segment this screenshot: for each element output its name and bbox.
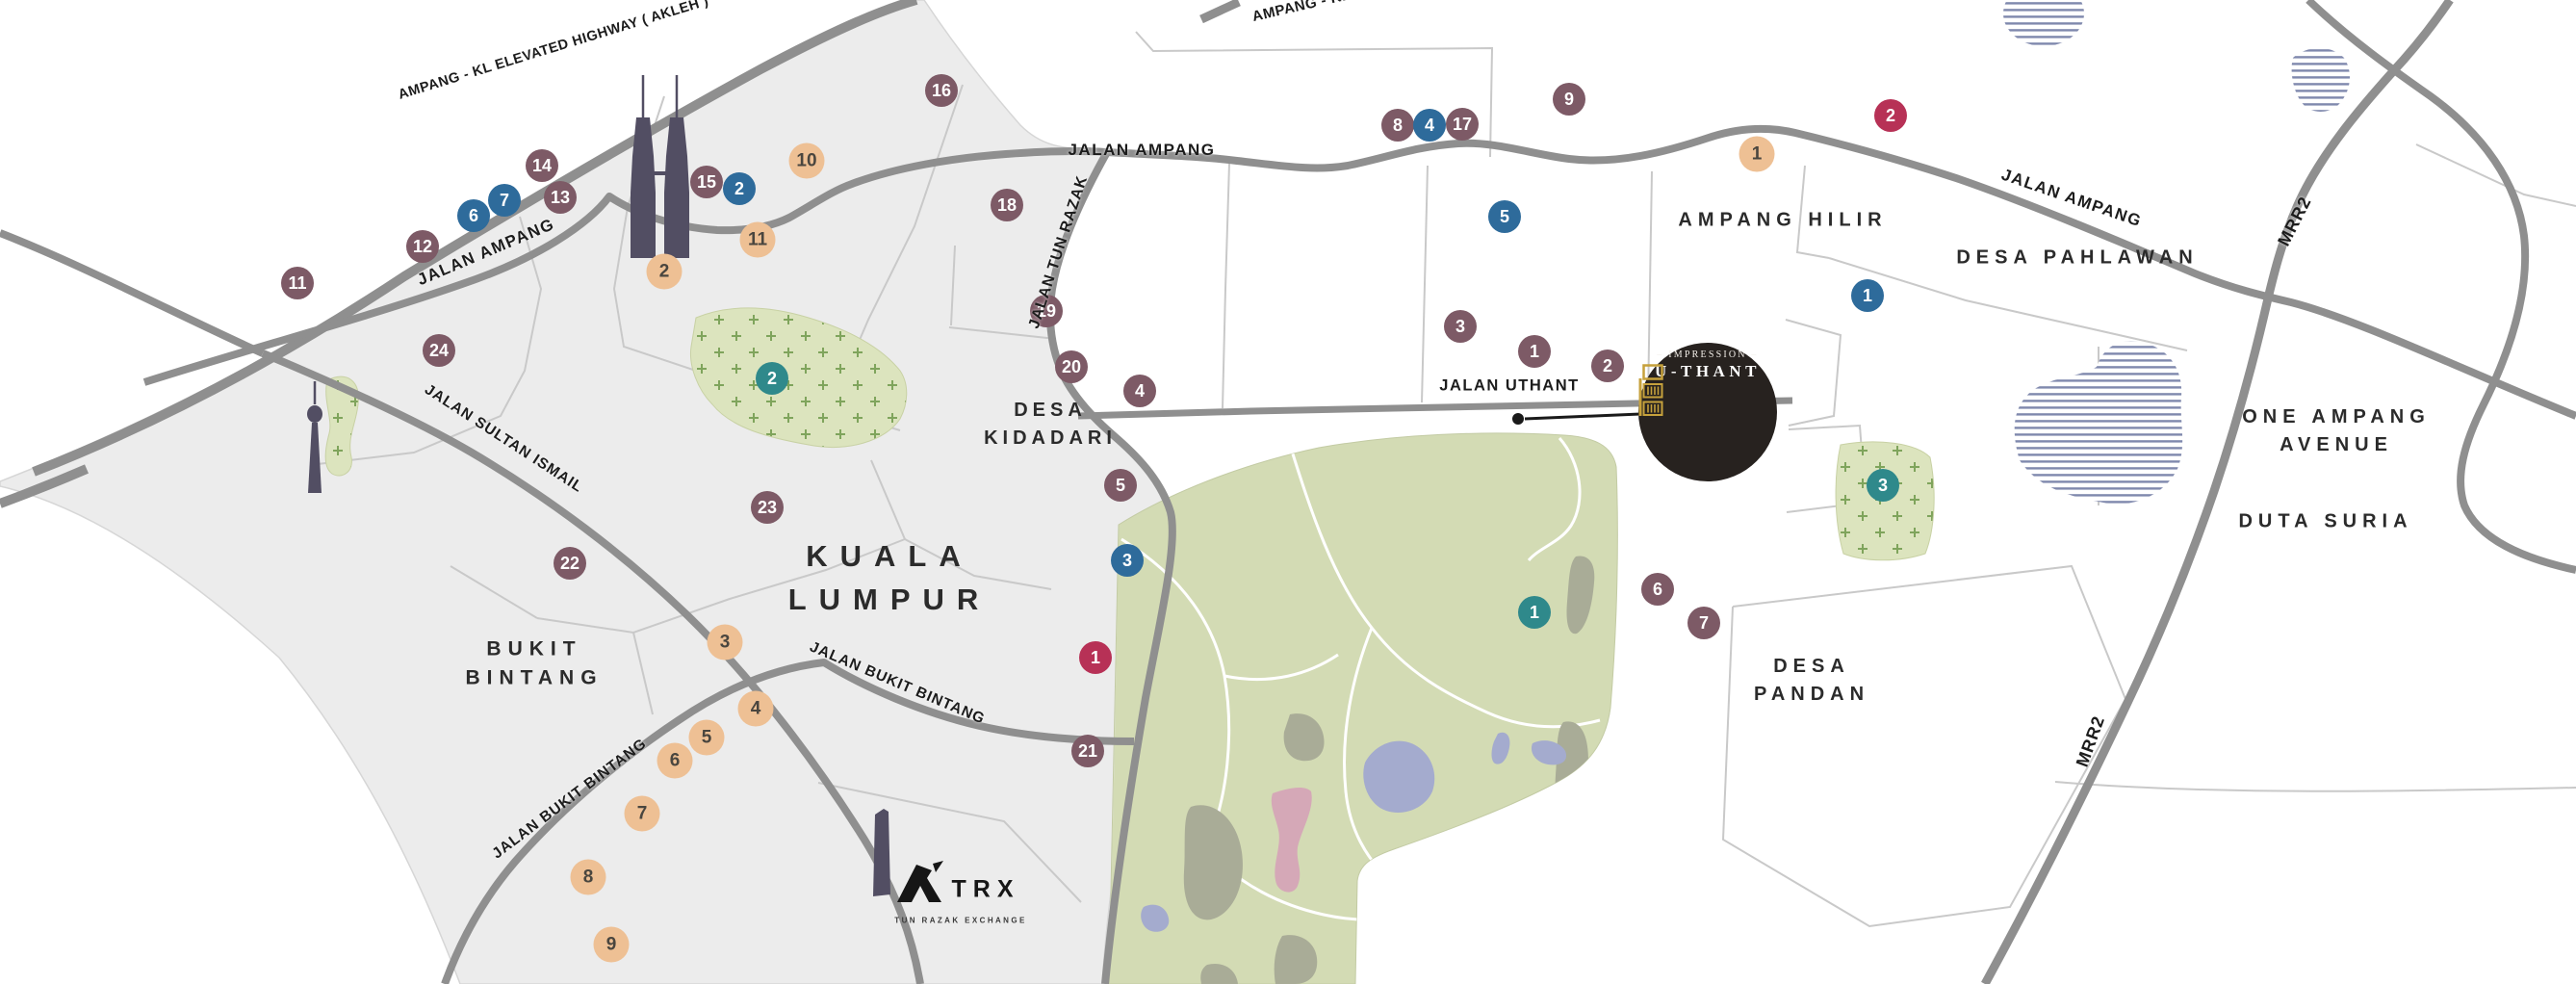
road-label-layer: AMPANG - KL ELEVATED HIGHWAY ( AKLEH )AM… [0,0,2576,984]
road-label: JALAN AMPANG [415,215,558,290]
road-label: JALAN TUN RAZAK [1026,173,1092,331]
road-label: MRR2 [2073,713,2110,770]
road-label: JALAN BUKIT BINTANG [489,736,650,863]
logo-impression-text: – IMPRESSION – [1657,350,1758,360]
uthant-building-icon [1638,364,1663,418]
road-label: JALAN SULTAN ISMAIL [421,381,585,497]
road-label: JALAN AMPANG [1068,141,1215,160]
road-label: JALAN BUKIT BINTANG [807,638,988,728]
road-label: AMPANG - KL [1250,0,1352,25]
road-label: MRR2 [2274,194,2316,250]
road-label: AMPANG - KL ELEVATED HIGHWAY ( AKLEH ) [397,0,710,103]
road-label: JALAN UTHANT [1439,377,1579,396]
impression-uthant-logo[interactable]: – IMPRESSION – U-THANT [1638,343,1777,481]
logo-uthant-text: U-THANT [1655,362,1761,381]
map-canvas[interactable]: 1112246714132289726515324112321016181920… [0,0,2576,984]
road-label: JALAN AMPANG [1998,166,2144,232]
